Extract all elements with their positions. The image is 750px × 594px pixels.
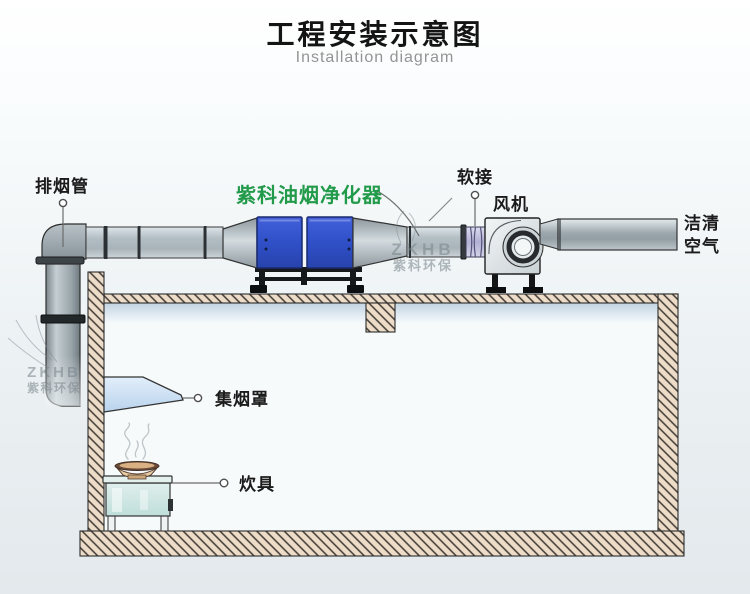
purifier-stand xyxy=(250,267,364,293)
label-fan: 风机 xyxy=(493,193,529,216)
label-clean-air: 洁清 空气 xyxy=(684,212,720,258)
fan-unit xyxy=(485,218,543,293)
floor-slab xyxy=(80,531,684,556)
left-wall xyxy=(88,272,104,532)
duct-joint xyxy=(559,219,561,250)
stove-handle xyxy=(168,499,173,511)
duct-segment xyxy=(86,227,104,258)
label-hood: 集烟罩 xyxy=(215,388,269,411)
watermark-text: 紫科环保 xyxy=(380,259,466,274)
elbow-flange xyxy=(36,257,84,264)
inlet-cone xyxy=(223,218,257,268)
label-soft-joint: 软接 xyxy=(457,166,493,189)
leader-soft-joint xyxy=(429,191,479,226)
watermark-text: ZKHB xyxy=(380,240,466,259)
outlet-duct xyxy=(558,219,677,250)
fan-outlet-cone xyxy=(540,219,558,249)
duct-joint xyxy=(138,226,141,259)
duct-joint xyxy=(204,226,207,259)
right-wall xyxy=(658,294,678,532)
horizontal-duct-run xyxy=(86,226,223,259)
fan-foot xyxy=(486,287,506,293)
stand-foot xyxy=(347,285,364,293)
duct-joint xyxy=(104,226,108,259)
fan-leg xyxy=(492,274,498,287)
label-exhaust-pipe: 排烟管 xyxy=(35,175,89,198)
ceiling-beam xyxy=(366,303,395,332)
label-purifier: 紫科油烟净化器 xyxy=(236,179,383,208)
watermark-text: 紫科环保 xyxy=(18,382,90,395)
fan-foot xyxy=(523,287,543,293)
fan-inlet-center xyxy=(515,239,532,256)
fan-leg xyxy=(529,274,535,287)
duct-segment xyxy=(107,227,138,258)
installation-diagram: 工程安装示意图 Installation diagram xyxy=(0,0,750,594)
label-cooker: 炊具 xyxy=(239,473,275,496)
stand-foot xyxy=(250,285,267,293)
watermark-center: ZKHB 紫科环保 xyxy=(380,240,466,274)
pipe-flange xyxy=(41,315,85,323)
purifier-box xyxy=(307,217,353,268)
ceiling-slab xyxy=(104,294,678,303)
stove-leg xyxy=(161,516,168,531)
purifier-box xyxy=(257,217,302,268)
duct-segment xyxy=(140,227,204,258)
watermark-left: ZKHB 紫科环保 xyxy=(18,365,90,395)
exhaust-elbow xyxy=(42,224,86,259)
diagram-canvas xyxy=(0,0,750,594)
stove-leg xyxy=(108,516,115,531)
room-structure xyxy=(80,272,684,556)
duct-segment xyxy=(206,227,223,258)
watermark-text: ZKHB xyxy=(18,365,90,382)
clean-air-outlet-duct xyxy=(540,219,677,250)
